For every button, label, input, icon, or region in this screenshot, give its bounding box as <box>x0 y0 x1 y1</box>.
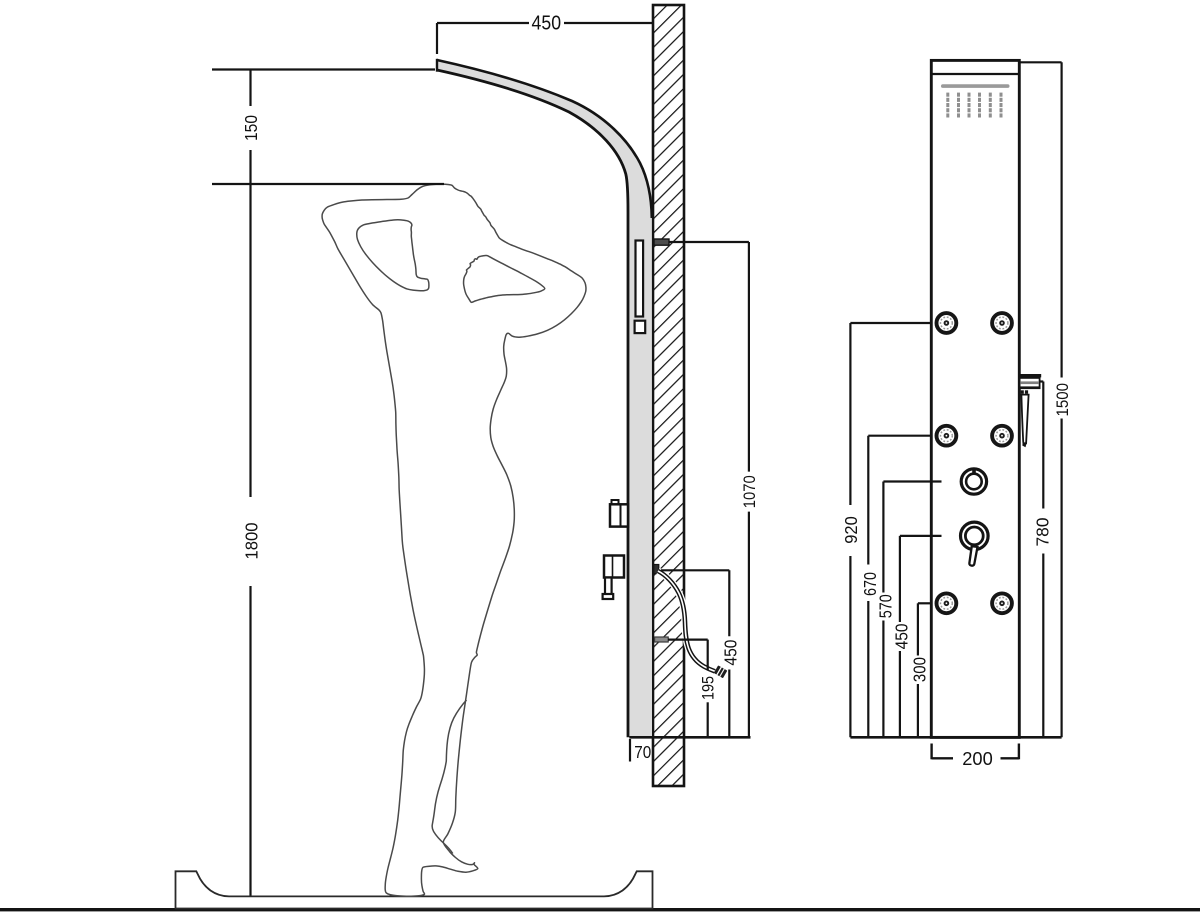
svg-text:670: 670 <box>860 572 880 596</box>
svg-text:1500: 1500 <box>1053 383 1072 417</box>
svg-text:780: 780 <box>1033 517 1053 546</box>
svg-text:450: 450 <box>891 623 911 649</box>
svg-text:300: 300 <box>910 657 930 682</box>
svg-text:70: 70 <box>634 742 651 762</box>
svg-text:1800: 1800 <box>241 522 261 559</box>
svg-text:570: 570 <box>876 594 896 618</box>
svg-text:1070: 1070 <box>740 475 759 508</box>
svg-text:200: 200 <box>962 749 993 769</box>
svg-text:920: 920 <box>841 516 861 544</box>
svg-text:150: 150 <box>241 115 261 141</box>
svg-text:195: 195 <box>698 676 717 700</box>
svg-text:450: 450 <box>532 12 562 34</box>
svg-text:450: 450 <box>721 639 741 665</box>
